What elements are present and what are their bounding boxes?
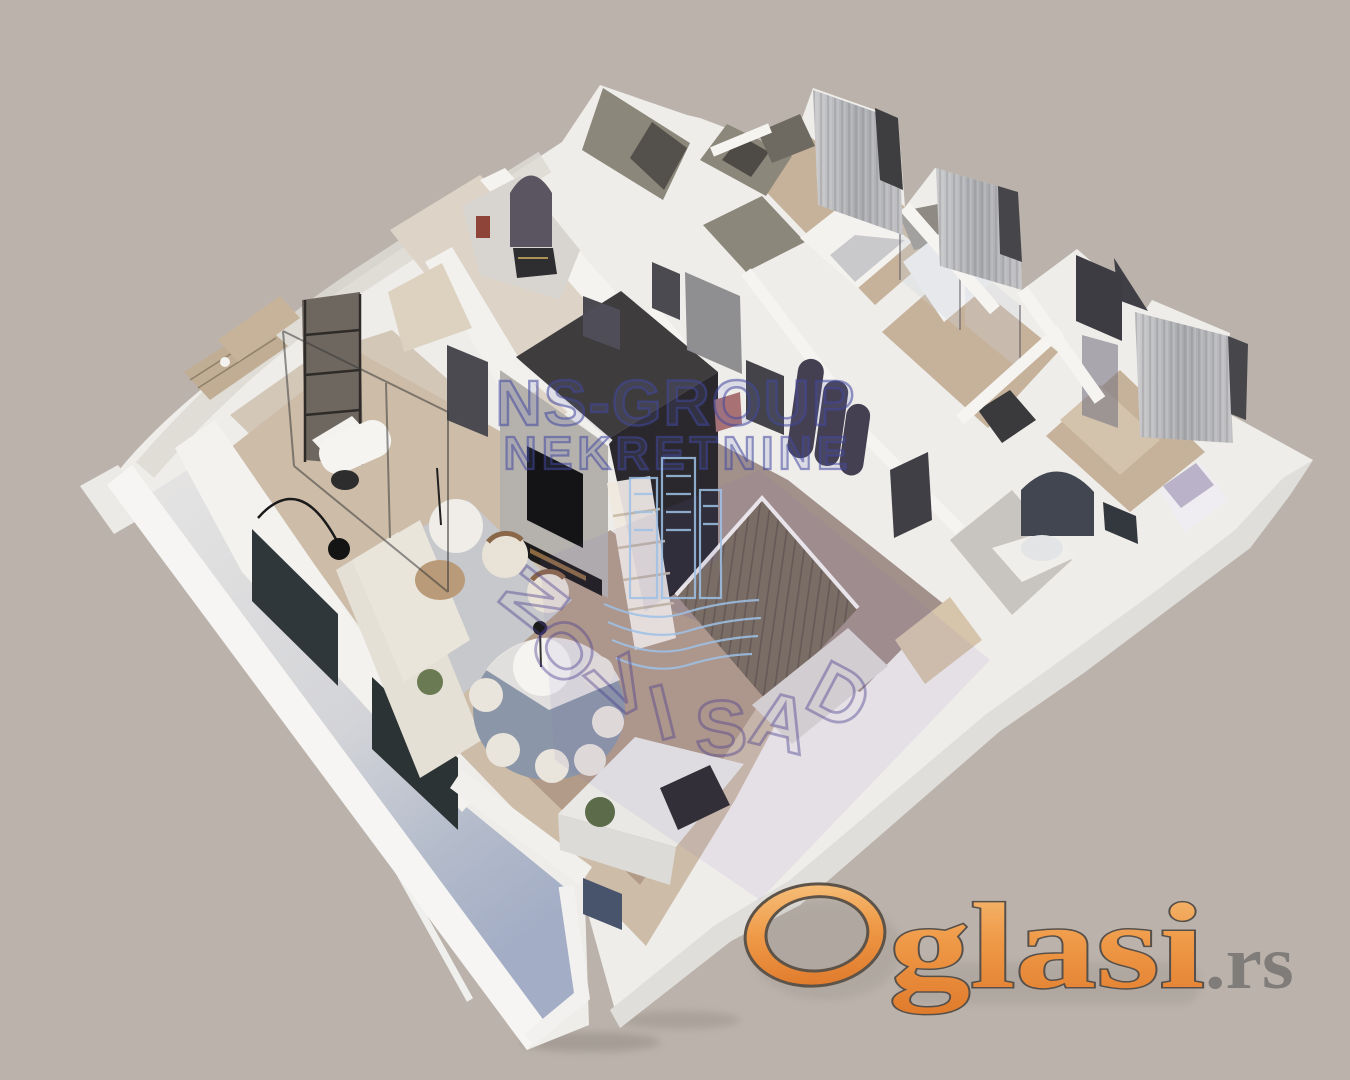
svg-text:NEKRETNINE: NEKRETNINE [503,427,852,479]
svg-text:glasi: glasi [889,879,1205,1014]
svg-text:S: S [693,683,748,773]
svg-text:.rs: .rs [1205,922,1294,1006]
